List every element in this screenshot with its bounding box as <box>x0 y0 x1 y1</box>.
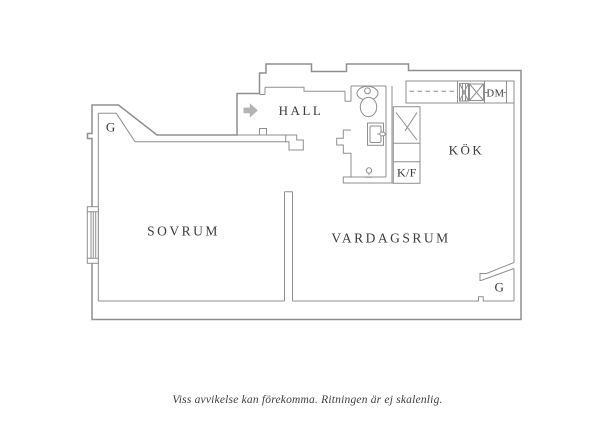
shower-drain <box>366 168 372 178</box>
window <box>87 207 98 264</box>
wall-pillar <box>286 135 304 150</box>
closet-diagonal-top-left <box>98 113 135 141</box>
label-closet-top-left: G <box>106 120 116 135</box>
floorplan-canvas: G HALL KÖK K/F DM SOVRUM VARDAGSRUM G Vi… <box>0 0 615 435</box>
label-bedroom: SOVRUM <box>147 224 220 239</box>
label-closet-bottom-right: G <box>495 280 505 295</box>
label-kitchen: KÖK <box>449 143 485 158</box>
closet-diagonal-bottom-right <box>480 263 514 281</box>
interior-walls <box>98 86 514 301</box>
disclaimer-caption: Viss avvikelse kan förekomma. Ritningen … <box>172 394 442 406</box>
bathroom-sink <box>368 123 386 145</box>
kitchen-sink <box>460 84 484 102</box>
label-dishwasher: DM <box>487 88 505 99</box>
floorplan-page: G HALL KÖK K/F DM SOVRUM VARDAGSRUM G Vi… <box>0 0 615 435</box>
label-fridge-freezer: K/F <box>397 166 417 180</box>
labels: G HALL KÖK K/F DM SOVRUM VARDAGSRUM G <box>106 88 505 294</box>
label-living-room: VARDAGSRUM <box>331 231 450 246</box>
toilet <box>357 86 378 116</box>
divider-wall <box>285 192 293 301</box>
label-hall: HALL <box>279 103 324 118</box>
entry-arrow-icon <box>244 103 258 117</box>
